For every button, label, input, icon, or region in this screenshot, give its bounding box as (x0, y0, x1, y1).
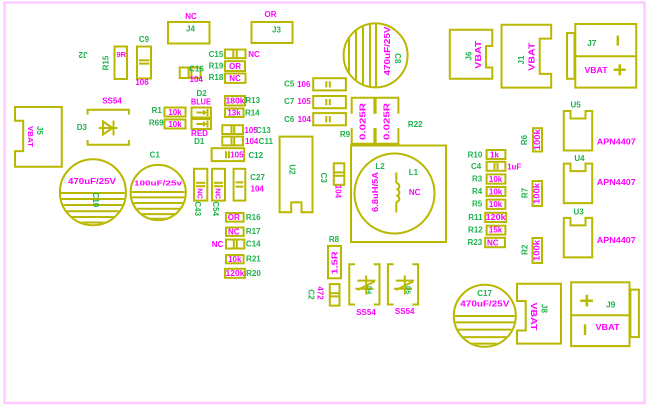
svg-text:D4: D4 (365, 286, 372, 295)
svg-text:J7: J7 (587, 38, 597, 48)
svg-text:1uF: 1uF (507, 162, 521, 171)
svg-text:J3: J3 (272, 25, 281, 34)
svg-text:C54: C54 (211, 201, 220, 216)
svg-text:NC: NC (228, 227, 240, 236)
svg-text:R10: R10 (468, 150, 483, 159)
svg-text:10k: 10k (228, 255, 242, 264)
svg-text:106: 106 (135, 78, 149, 87)
svg-text:J9: J9 (606, 300, 616, 310)
svg-text:R14: R14 (245, 108, 260, 117)
svg-text:R9: R9 (340, 130, 351, 139)
svg-text:C27: C27 (250, 173, 265, 182)
svg-text:470uF/25V: 470uF/25V (68, 177, 117, 186)
svg-text:NC: NC (212, 240, 224, 249)
svg-text:106: 106 (297, 80, 311, 89)
svg-text:105: 105 (297, 97, 311, 106)
svg-text:105: 105 (230, 150, 244, 159)
svg-text:120k: 120k (486, 213, 507, 222)
svg-text:100uF/25v: 100uF/25v (134, 179, 183, 188)
svg-text:D3: D3 (77, 123, 88, 132)
svg-text:C1: C1 (150, 151, 161, 160)
svg-text:C2: C2 (306, 289, 315, 300)
svg-text:R15: R15 (102, 55, 111, 70)
svg-text:SS54: SS54 (356, 308, 376, 317)
svg-text:0.025R: 0.025R (359, 103, 368, 140)
svg-text:NC: NC (487, 238, 499, 247)
svg-text:NC: NC (196, 188, 205, 199)
svg-text:OR: OR (228, 213, 240, 222)
svg-text:R20: R20 (246, 269, 261, 278)
svg-text:C11: C11 (259, 137, 274, 146)
svg-text:15k: 15k (489, 226, 503, 235)
svg-text:VBAT: VBAT (527, 43, 536, 71)
svg-text:C14: C14 (246, 240, 261, 249)
svg-text:D5: D5 (404, 286, 411, 295)
svg-text:C12: C12 (248, 151, 263, 160)
svg-text:SS54: SS54 (102, 97, 122, 106)
svg-text:10k: 10k (168, 120, 182, 129)
svg-text:J2: J2 (78, 50, 87, 59)
svg-text:C15: C15 (209, 50, 224, 59)
svg-text:J6: J6 (465, 51, 474, 60)
svg-text:120k: 120k (226, 269, 246, 278)
svg-text:104: 104 (298, 115, 312, 124)
svg-text:OR: OR (265, 10, 277, 19)
svg-text:10k: 10k (489, 200, 503, 209)
svg-text:R11: R11 (468, 213, 483, 222)
svg-text:C10: C10 (91, 193, 100, 208)
svg-text:C13: C13 (256, 126, 271, 135)
svg-text:R1: R1 (152, 106, 163, 115)
svg-text:R6: R6 (520, 134, 529, 145)
svg-text:R16: R16 (246, 213, 261, 222)
svg-text:VBAT: VBAT (529, 303, 538, 331)
svg-text:NC: NC (229, 74, 241, 83)
svg-text:1k: 1k (490, 150, 499, 159)
svg-text:U4: U4 (574, 154, 585, 163)
svg-text:VBAT: VBAT (26, 126, 35, 147)
svg-text:R12: R12 (468, 226, 483, 235)
svg-text:U5: U5 (570, 101, 581, 110)
svg-text:100k: 100k (533, 129, 542, 151)
svg-text:C9: C9 (139, 35, 150, 44)
svg-text:6.8uH/5A: 6.8uH/5A (371, 172, 380, 212)
svg-text:C17: C17 (477, 289, 492, 298)
svg-text:0.025R: 0.025R (383, 103, 392, 140)
svg-text:104: 104 (245, 137, 259, 146)
svg-text:U2: U2 (288, 164, 297, 175)
svg-text:C6: C6 (284, 115, 295, 124)
svg-text:104: 104 (251, 184, 265, 193)
svg-text:C4: C4 (471, 162, 482, 171)
svg-text:472: 472 (315, 286, 324, 300)
svg-text:VBAT: VBAT (596, 322, 621, 332)
svg-text:R23: R23 (468, 238, 483, 247)
svg-text:C3: C3 (319, 173, 328, 184)
svg-text:104: 104 (334, 185, 343, 199)
svg-text:1.5R: 1.5R (330, 251, 339, 274)
svg-text:R18: R18 (209, 73, 224, 82)
svg-text:C43: C43 (193, 201, 202, 216)
svg-text:100k: 100k (533, 182, 542, 204)
svg-text:BLUE: BLUE (191, 97, 212, 106)
svg-text:APN4407: APN4407 (597, 178, 637, 187)
svg-text:J4: J4 (186, 25, 195, 34)
svg-text:R4: R4 (472, 187, 483, 196)
svg-text:R5: R5 (472, 200, 483, 209)
svg-text:J8: J8 (539, 304, 548, 313)
svg-text:APN4407: APN4407 (597, 236, 637, 245)
svg-text:C16: C16 (189, 65, 204, 74)
svg-text:NC: NC (248, 50, 260, 59)
svg-text:L2: L2 (375, 162, 385, 171)
svg-text:NC: NC (185, 12, 197, 21)
svg-text:R2: R2 (520, 244, 529, 255)
svg-text:R69: R69 (149, 119, 164, 128)
svg-text:180k: 180k (226, 97, 246, 106)
svg-text:470uF/25V: 470uF/25V (383, 26, 392, 76)
svg-text:D1: D1 (194, 137, 205, 146)
svg-text:J1: J1 (517, 55, 526, 64)
svg-text:10k: 10k (489, 187, 503, 196)
svg-text:OR: OR (229, 62, 241, 71)
svg-text:100k: 100k (533, 239, 542, 261)
svg-text:APN4407: APN4407 (597, 138, 637, 147)
svg-text:U3: U3 (573, 207, 584, 216)
svg-text:NC: NC (409, 188, 421, 197)
svg-text:R19: R19 (209, 61, 224, 70)
svg-text:10k: 10k (168, 108, 182, 117)
svg-text:C5: C5 (284, 80, 295, 89)
svg-text:SS54: SS54 (395, 307, 415, 316)
svg-text:L1: L1 (409, 168, 419, 177)
svg-text:R7: R7 (520, 187, 529, 198)
svg-text:104: 104 (190, 75, 204, 84)
svg-text:R3: R3 (472, 175, 483, 184)
svg-text:NC: NC (213, 188, 222, 199)
svg-text:R21: R21 (246, 255, 261, 264)
svg-text:VBAT: VBAT (474, 41, 483, 69)
svg-text:R13: R13 (245, 96, 260, 105)
svg-text:R17: R17 (246, 227, 261, 236)
svg-text:C8: C8 (393, 53, 402, 64)
svg-text:470uF/25V: 470uF/25V (460, 299, 510, 308)
svg-text:R8: R8 (329, 235, 340, 244)
svg-text:C7: C7 (284, 97, 295, 106)
svg-text:9R: 9R (117, 50, 127, 59)
svg-text:VBAT: VBAT (585, 65, 609, 75)
svg-text:10k: 10k (489, 175, 503, 184)
svg-text:R22: R22 (408, 120, 423, 129)
svg-text:J5: J5 (35, 126, 44, 135)
svg-text:13k: 13k (227, 109, 241, 118)
